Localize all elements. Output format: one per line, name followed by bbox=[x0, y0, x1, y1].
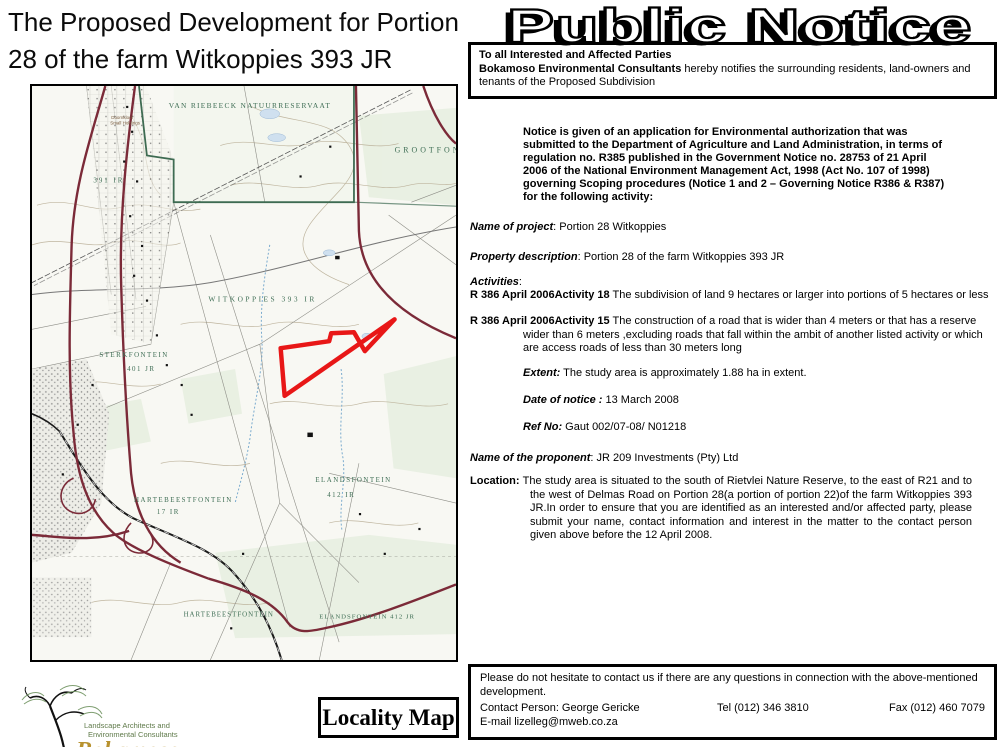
page-title-line2: 28 of the farm Witkoppies 393 JR bbox=[8, 41, 468, 78]
location-label: Location: bbox=[470, 475, 520, 487]
map-label-391: 391 IR bbox=[93, 176, 124, 184]
ref-value: Gaut 002/07-08/ N01218 bbox=[562, 421, 686, 433]
locality-map-caption: Locality Map bbox=[318, 697, 459, 738]
location-value: The study area is situated to the south … bbox=[520, 475, 973, 541]
map-label-hartebeest1-no: 17 IR bbox=[157, 508, 180, 516]
activity-15-label: R 386 April 2006Activity 15 bbox=[470, 315, 610, 327]
activities-colon: : bbox=[519, 276, 522, 288]
contact-fax: Fax (012) 460 7079 bbox=[889, 702, 985, 716]
contact-box: Please do not hesitate to contact us if … bbox=[468, 664, 997, 740]
public-notice-page: The Proposed Development for Portion 28 … bbox=[0, 0, 1000, 747]
contact-row: Contact Person: George Gericke Tel (012)… bbox=[480, 702, 985, 716]
locality-map-frame: VAN RIEBEECK NATUURRESERVAAT GROOTFONTEI… bbox=[30, 84, 458, 662]
field-property-value: : Portion 28 of the farm Witkoppies 393 … bbox=[578, 251, 785, 263]
addressees-line2: Bokamoso Environmental Consultants hereb… bbox=[479, 63, 986, 90]
contact-tel: Tel (012) 346 3810 bbox=[717, 702, 809, 716]
bokamoso-logo: Landscape Architects and Environmental C… bbox=[4, 684, 234, 747]
page-title-line1: The Proposed Development for Portion bbox=[8, 4, 468, 41]
activity-18-label: R 386 April 2006Activity 18 bbox=[470, 289, 610, 301]
map-label-sterkfontein-no: 401 JR bbox=[127, 365, 155, 373]
proponent-label: Name of the proponent bbox=[470, 452, 590, 464]
addressees-line1: To all Interested and Affected Parties bbox=[479, 49, 986, 63]
field-extent: Extent: The study area is approximately … bbox=[523, 367, 807, 381]
field-property-label: Property description bbox=[470, 251, 578, 263]
proponent-value: : JR 209 Investments (Pty) Ltd bbox=[590, 452, 738, 464]
extent-value: The study area is approximately 1.88 ha … bbox=[560, 367, 806, 379]
extent-label: Extent: bbox=[523, 367, 560, 379]
activities-label: Activities bbox=[470, 276, 519, 288]
activity-15-item: R 386 April 2006Activity 15 The construc… bbox=[470, 315, 992, 356]
map-label-hartebeest2: HARTEBEESTFONTEIN bbox=[184, 610, 274, 618]
map-label-hartebeest1: HARTEBEESTFONTEIN bbox=[134, 496, 233, 504]
map-label-grootfontein: GROOTFONTEIN bbox=[395, 146, 456, 155]
intro-paragraph: Notice is given of an application for En… bbox=[523, 126, 947, 204]
field-project-name: Name of project: Portion 28 Witkoppies bbox=[470, 221, 666, 235]
date-value: 13 March 2008 bbox=[602, 394, 678, 406]
map-label-elands1: ELANDSFONTEIN bbox=[315, 476, 391, 484]
field-ref-no: Ref No: Gaut 002/07-08/ N01218 bbox=[523, 421, 686, 435]
logo-company-name: Bokamoso bbox=[75, 738, 180, 747]
map-label-reserve: VAN RIEBEECK NATUURRESERVAAT bbox=[169, 101, 331, 110]
addressees-box: To all Interested and Affected Parties B… bbox=[468, 42, 997, 99]
map-label-elands1-no: 412 IR bbox=[327, 491, 355, 499]
contact-person: Contact Person: George Gericke bbox=[480, 702, 640, 714]
consultant-name: Bokamoso Environmental Consultants bbox=[479, 63, 681, 75]
logo-tagline1: Landscape Architects and bbox=[84, 721, 170, 730]
ref-label: Ref No: bbox=[523, 421, 562, 433]
map-label-doornkloof2: Small Holdings bbox=[110, 121, 140, 126]
page-title: The Proposed Development for Portion 28 … bbox=[8, 4, 468, 78]
locality-map-image: VAN RIEBEECK NATUURRESERVAAT GROOTFONTEI… bbox=[32, 86, 456, 660]
map-label-doornkloof1: Doornkloof bbox=[111, 115, 133, 120]
field-property-description: Property description: Portion 28 of the … bbox=[470, 251, 784, 265]
locality-map-caption-text: Locality Map bbox=[322, 705, 454, 731]
activity-18-item: R 386 April 2006Activity 18 The subdivis… bbox=[470, 289, 992, 303]
field-proponent: Name of the proponent: JR 209 Investment… bbox=[470, 452, 738, 466]
field-location: Location: The study area is situated to … bbox=[470, 475, 972, 543]
contact-email: E-mail lizelleg@mweb.co.za bbox=[480, 716, 985, 730]
map-label-sterkfontein: STERKFONTEIN bbox=[99, 351, 168, 359]
date-label: Date of notice : bbox=[523, 394, 602, 406]
field-project-label: Name of project bbox=[470, 221, 553, 233]
map-label-elands2: ELANDSFONTEIN 412 JR bbox=[319, 613, 415, 620]
activity-18-text: The subdivision of land 9 hectares or la… bbox=[610, 289, 989, 301]
contact-intro: Please do not hesitate to contact us if … bbox=[480, 672, 985, 699]
field-activities-heading: Activities: bbox=[470, 276, 522, 290]
field-project-value: : Portion 28 Witkoppies bbox=[553, 221, 666, 233]
map-label-witkoppies: WITKOPPIES 393 IR bbox=[208, 294, 316, 303]
field-date-of-notice: Date of notice : 13 March 2008 bbox=[523, 394, 679, 408]
